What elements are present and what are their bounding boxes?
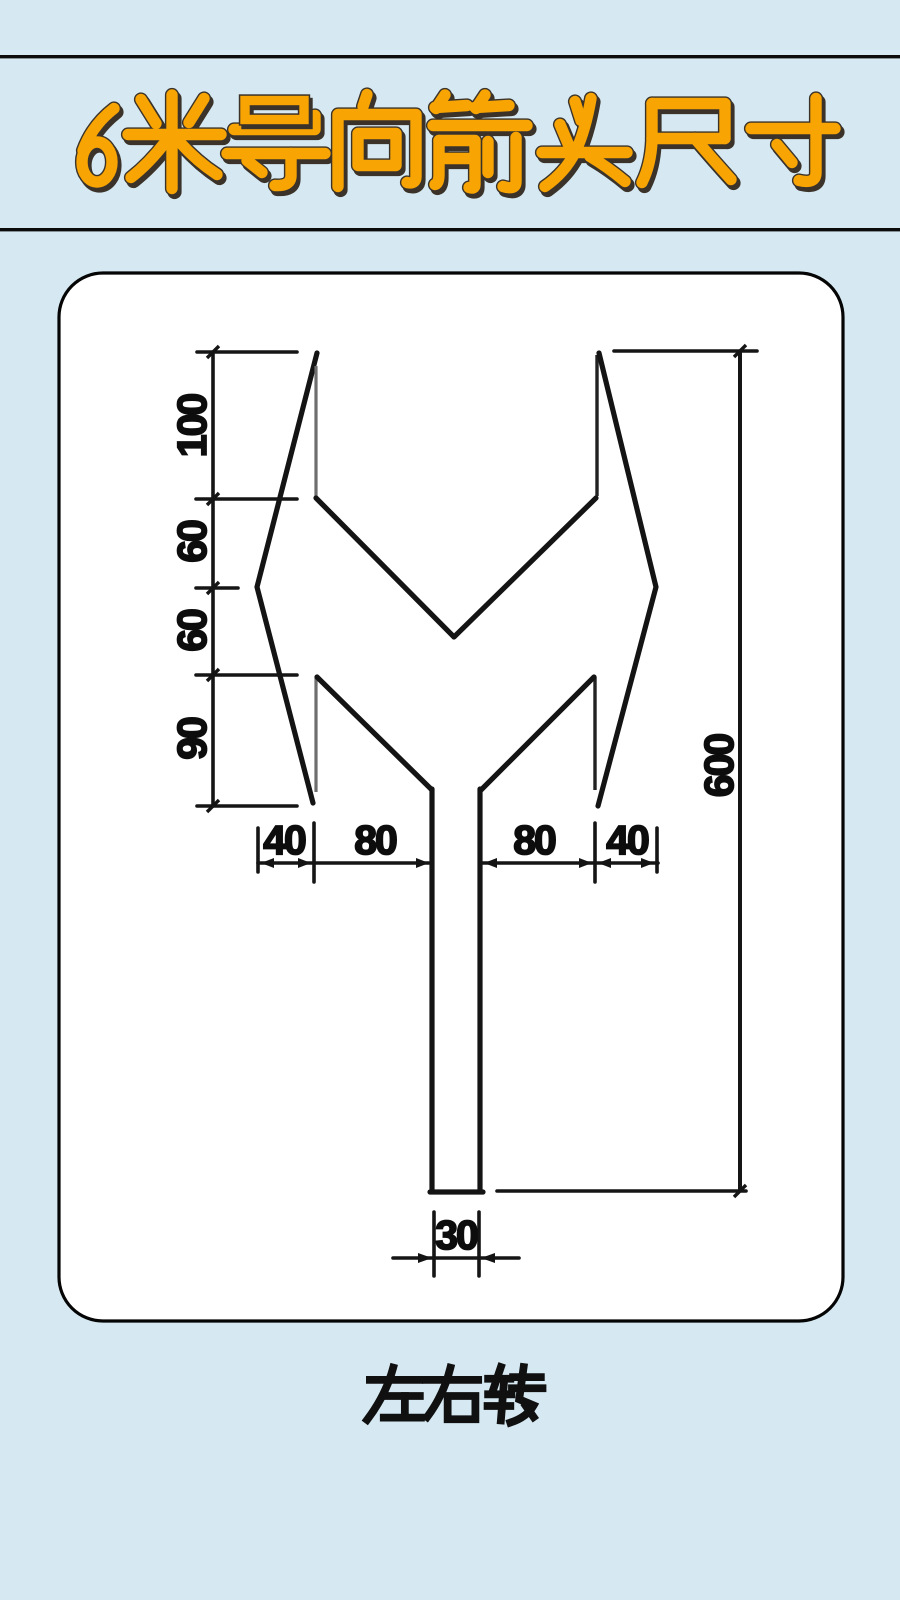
svg-text:80: 80 [513, 817, 556, 863]
svg-text:80: 80 [354, 817, 397, 863]
svg-text:30: 30 [435, 1212, 478, 1258]
svg-text:60: 60 [169, 520, 215, 563]
svg-text:40: 40 [263, 817, 306, 863]
svg-text:600: 600 [696, 734, 742, 798]
svg-text:60: 60 [169, 609, 215, 652]
svg-text:90: 90 [169, 717, 215, 760]
svg-text:40: 40 [606, 817, 649, 863]
svg-text:100: 100 [169, 394, 215, 458]
